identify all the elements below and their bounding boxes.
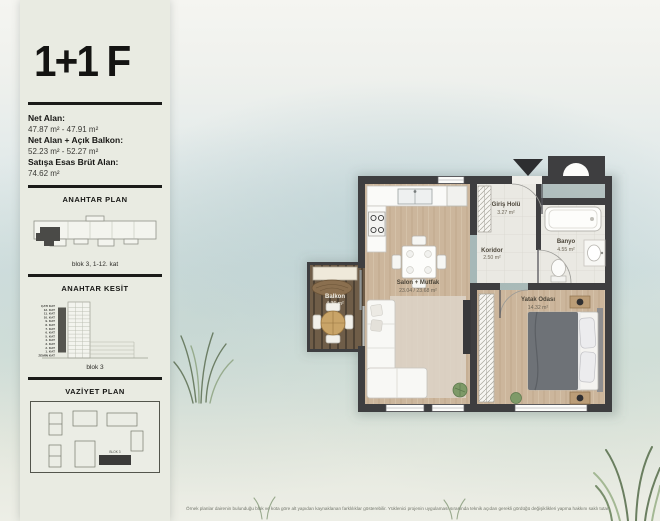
highlighted-block-label: BLOK 3 (109, 450, 120, 454)
entry-closet (478, 186, 491, 232)
living-window-1 (386, 405, 424, 412)
fridge (447, 186, 467, 206)
net-alan-balkon-value: 52.23 m² - 52.27 m² (28, 146, 162, 157)
balcony-bench (313, 267, 357, 280)
divider (28, 274, 162, 277)
area-balkon: 4.36 m² (326, 301, 344, 307)
key-section-graphic: ÇATI KAT 12. KAT 11. KAT 10. KAT 9. KAT … (28, 298, 162, 362)
bedroom-plant (511, 393, 522, 404)
nightstand-top (570, 296, 590, 308)
key-plan-graphic (28, 209, 162, 259)
label-salon-mutfak: Salon + Mutfak (397, 280, 440, 286)
net-alan-balkon-label: Net Alan + Açık Balkon: (28, 135, 162, 146)
area-info: Net Alan: 47.87 m² - 47.91 m² Net Alan +… (28, 113, 162, 179)
area-yatak-odasi: 14.32 m² (528, 305, 549, 311)
area-giris-holu: 3.27 m² (497, 210, 515, 216)
key-section-highlight-bar (58, 308, 66, 353)
label-balkon: Balkon (325, 294, 345, 300)
brut-alan-value: 74.62 m² (28, 168, 162, 179)
label-yatak-odasi: Yatak Odası (521, 297, 555, 303)
living-plant (453, 383, 467, 397)
label-giris-holu: Giriş Holü (492, 202, 521, 208)
alcove (548, 156, 605, 176)
site-plan-graphic: BLOK 3 (37, 405, 153, 469)
net-alan-label: Net Alan: (28, 113, 162, 124)
key-section-wing (90, 342, 134, 358)
label-banyo: Banyo (557, 239, 576, 245)
anahtar-plan-caption: blok 3, 1-12. kat (20, 261, 170, 268)
living-window-2 (432, 405, 464, 412)
washbasin (584, 240, 605, 266)
bathtub (545, 207, 601, 231)
divider (28, 185, 162, 188)
sidebar: 1+1 F Net Alan: 47.87 m² - 47.91 m² Net … (20, 0, 170, 521)
area-salon-mutfak: 23.04 / 23.68 m² (399, 288, 437, 294)
net-alan-value: 47.87 m² - 47.91 m² (28, 124, 162, 135)
disclaimer-text: Örnek planlar dairenin bulunduğu blok ve… (186, 506, 626, 512)
pillow (579, 317, 596, 348)
toilet (551, 260, 566, 283)
anahtar-plan-heading: ANAHTAR PLAN (20, 195, 170, 204)
floor-labels: ÇATI KAT 12. KAT 11. KAT 10. KAT 9. KAT … (38, 304, 55, 357)
bed (528, 308, 603, 392)
tv-unit (463, 300, 471, 354)
page-title: 1+1 F (34, 40, 154, 84)
anahtar-kesit-heading: ANAHTAR KESİT (20, 284, 170, 293)
site-plan-box: BLOK 3 (30, 401, 160, 473)
vaziyet-plan-heading: VAZİYET PLAN (20, 387, 170, 396)
area-koridor: 2.50 m² (483, 255, 501, 261)
entry-arrow-icon (513, 159, 543, 176)
divider (28, 377, 162, 380)
bedroom-window (515, 405, 587, 412)
entrance-threshold (512, 176, 542, 184)
stove (369, 212, 386, 236)
pillow (579, 352, 596, 383)
site-plan-highlighted-block (99, 455, 131, 465)
brochure-page: Salon + Mutfak 23.04 / 23.68 m² Yatak Od… (0, 0, 660, 521)
wardrobe (479, 294, 494, 402)
area-banyo: 4.55 m² (557, 247, 575, 253)
kitchen-sink (398, 189, 432, 204)
label-koridor: Koridor (481, 248, 503, 254)
divider (28, 102, 162, 105)
balcony-table (321, 311, 345, 335)
svg-text:ZEMİN KAT: ZEMİN KAT (38, 353, 55, 357)
anahtar-kesit-caption: blok 3 (20, 364, 170, 371)
kitchen-window (438, 177, 464, 184)
brut-alan-label: Satışa Esas Brüt Alan: (28, 157, 162, 168)
nightstand-bottom (570, 392, 590, 404)
